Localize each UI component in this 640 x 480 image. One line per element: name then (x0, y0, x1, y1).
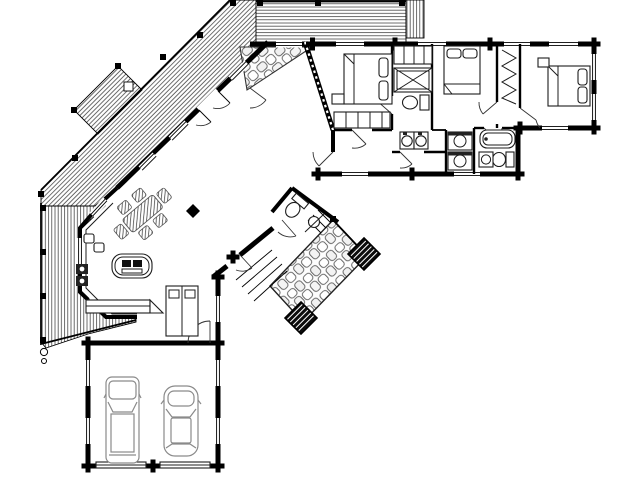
toilet-symbol (403, 95, 430, 110)
stone-entry-walk (240, 47, 312, 90)
sink-symbol (479, 152, 493, 167)
deck-steps (406, 0, 424, 38)
bathtub-symbol (480, 130, 515, 148)
master-bathroom (394, 46, 432, 149)
bedroom-3-bed (548, 66, 590, 106)
nightstand (538, 58, 549, 67)
bedroom-2-bed (444, 46, 480, 94)
bedroom-2 (444, 46, 480, 94)
deck-pier (40, 348, 47, 355)
upper-deck (256, 0, 406, 42)
shower-symbol (394, 68, 432, 92)
hall-bathroom (479, 130, 515, 167)
garage (96, 377, 210, 468)
floor-plan-image (0, 0, 640, 480)
living-room (186, 204, 200, 218)
kitchen-island (112, 254, 152, 278)
post-column (186, 204, 200, 218)
closet-hanging (502, 50, 516, 104)
deck-pier (42, 359, 47, 364)
floor-plan-svg (0, 0, 640, 480)
linen-closet (394, 46, 432, 64)
nightstand (332, 94, 344, 104)
car (161, 386, 201, 456)
master-bedroom (332, 54, 392, 128)
angled-deck (38, 0, 268, 206)
vanity-sinks (400, 132, 428, 149)
truck (104, 377, 141, 463)
deck-skylight (124, 82, 133, 91)
master-bed (344, 54, 392, 104)
laundry (448, 132, 472, 170)
toilet-symbol (493, 152, 515, 167)
master-closet (334, 112, 390, 128)
refrigerator (166, 286, 198, 336)
peninsula-counter (86, 300, 163, 313)
kitchen-sink (84, 234, 104, 252)
bedroom-3 (538, 58, 590, 106)
